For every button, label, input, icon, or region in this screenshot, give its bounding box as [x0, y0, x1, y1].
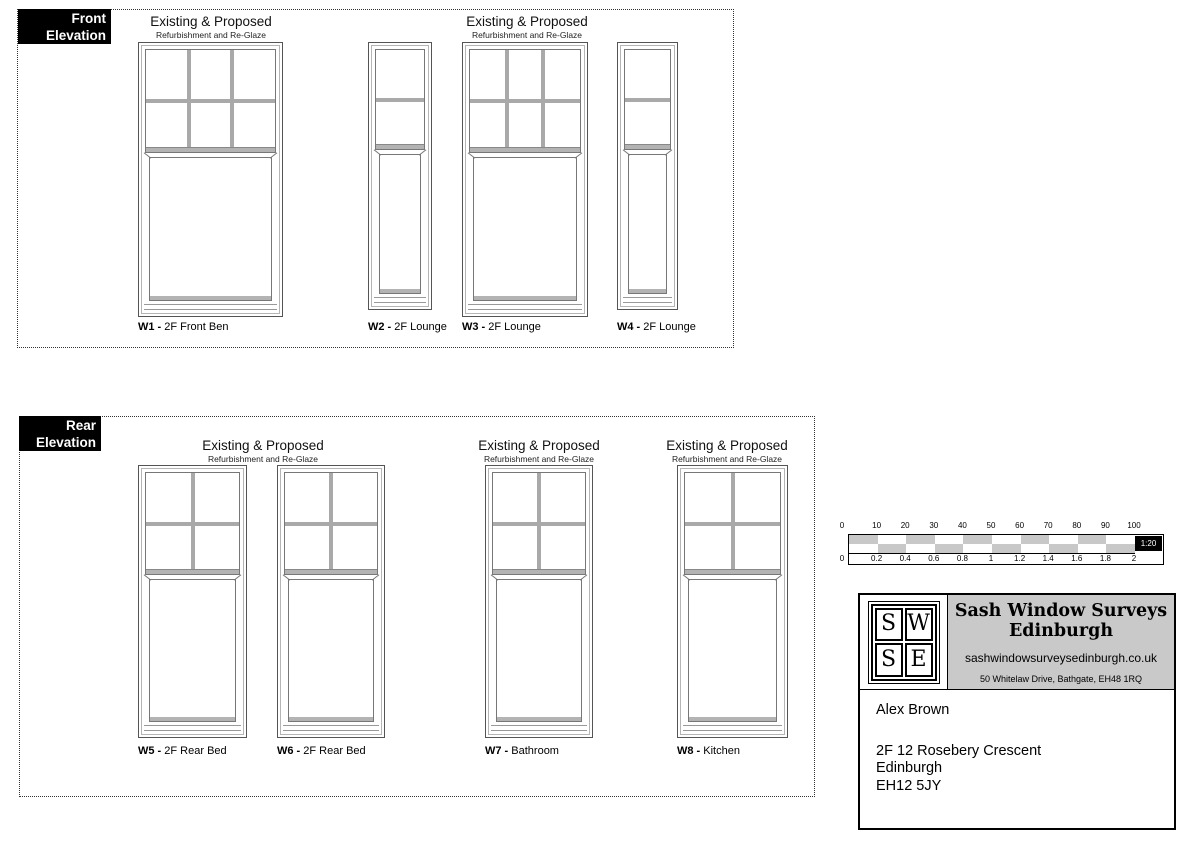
rear-heading-1-title: Existing & Proposed — [202, 438, 324, 453]
scale-segment — [1078, 535, 1107, 544]
scale-segment — [849, 535, 878, 544]
window-w1-label: W1 - 2F Front Ben — [138, 321, 228, 333]
scale-top-label: 80 — [1072, 521, 1081, 530]
bottom-sash-w3 — [473, 157, 577, 301]
scale-bottom-label: 0.8 — [957, 554, 968, 563]
bottom-rail — [150, 717, 235, 721]
scale-bottom-label: 0 — [840, 554, 844, 563]
bottom-sash-w7 — [496, 579, 582, 722]
rear-heading-1-subtitle: Refurbishment and Re-Glaze — [202, 454, 324, 464]
company-logo-frame: S W S E — [868, 601, 940, 684]
company-info: Sash Window Surveys Edinburgh sashwindow… — [947, 595, 1174, 689]
scale-top-label: 40 — [958, 521, 967, 530]
glazing-bar-horizontal — [625, 98, 670, 102]
scale-segment — [1049, 544, 1078, 553]
logo-letter-s1: S — [875, 608, 903, 642]
top-sash-w8 — [684, 472, 781, 575]
meeting-rail — [685, 569, 780, 574]
bottom-sash-w6 — [288, 579, 374, 722]
scale-top-label: 60 — [1015, 521, 1024, 530]
bottom-rail — [474, 296, 576, 300]
scale-bottom-label: 2 — [1132, 554, 1136, 563]
glazing-bar-horizontal — [470, 99, 580, 103]
window-w3 — [462, 42, 588, 317]
meeting-rail — [376, 144, 424, 149]
window-w6-label: W6 - 2F Rear Bed — [277, 745, 366, 757]
scale-top-label: 50 — [987, 521, 996, 530]
bottom-rail — [380, 289, 420, 293]
company-website: sashwindowsurveysedinburgh.co.uk — [965, 651, 1157, 665]
scale-segment — [963, 535, 992, 544]
window-frame-w8 — [680, 468, 785, 735]
rear-heading-2-title: Existing & Proposed — [478, 438, 600, 453]
window-w5 — [138, 465, 247, 738]
glazing-bar-horizontal — [376, 98, 424, 102]
title-block-header: S W S E Sash Window Surveys Edinburgh sa… — [860, 595, 1174, 690]
window-sill — [144, 725, 241, 731]
scale-segment — [878, 544, 907, 553]
meeting-rail — [146, 569, 239, 574]
scale-segment — [935, 535, 964, 544]
rear-heading-2: Existing & Proposed Refurbishment and Re… — [478, 438, 600, 464]
window-w3-label: W3 - 2F Lounge — [462, 321, 541, 333]
front-heading-1-subtitle: Refurbishment and Re-Glaze — [150, 30, 272, 40]
window-sill — [623, 297, 672, 303]
rear-heading-3-subtitle: Refurbishment and Re-Glaze — [666, 454, 788, 464]
scale-top-label: 70 — [1044, 521, 1053, 530]
bottom-rail — [497, 717, 581, 721]
scale-top-label: 20 — [901, 521, 910, 530]
scale-segment — [963, 544, 992, 553]
window-w1 — [138, 42, 283, 317]
scale-bottom-label: 0.6 — [928, 554, 939, 563]
logo-letter-w: W — [905, 608, 933, 642]
rear-heading-3: Existing & Proposed Refurbishment and Re… — [666, 438, 788, 464]
scale-bottom-label: 0.2 — [871, 554, 882, 563]
bottom-sash-w8 — [688, 579, 777, 722]
scale-bottom-label: 1.8 — [1100, 554, 1111, 563]
logo-letter-e: E — [905, 643, 933, 677]
window-frame-w4 — [620, 45, 675, 307]
front-heading-2: Existing & Proposed Refurbishment and Re… — [466, 14, 588, 40]
window-w4-label: W4 - 2F Lounge — [617, 321, 696, 333]
scale-bottom-label: 1.6 — [1071, 554, 1082, 563]
client-address-line1: 2F 12 Rosebery Crescent — [876, 743, 1158, 761]
scale-bottom-label: 1.2 — [1014, 554, 1025, 563]
scale-top-label: 100 — [1127, 521, 1140, 530]
scale-segment — [1021, 535, 1050, 544]
rear-elevation-label-line2: Elevation — [19, 435, 96, 452]
scale-segment — [849, 544, 878, 553]
logo-letter-s2: S — [875, 643, 903, 677]
meeting-rail — [146, 147, 275, 152]
client-name: Alex Brown — [876, 702, 1158, 720]
top-sash-w5 — [145, 472, 240, 575]
window-frame-w1 — [141, 45, 280, 314]
front-elevation-label-line2: Elevation — [18, 28, 106, 45]
client-address-line2: Edinburgh — [876, 760, 1158, 778]
scale-bar-box: 1:20 — [848, 534, 1164, 565]
company-name: Sash Window Surveys Edinburgh — [955, 602, 1167, 641]
window-frame-w2 — [371, 45, 429, 307]
bottom-sash-w1 — [149, 157, 272, 301]
scale-top-label: 0 — [840, 521, 844, 530]
rear-heading-2-subtitle: Refurbishment and Re-Glaze — [478, 454, 600, 464]
front-heading-2-subtitle: Refurbishment and Re-Glaze — [466, 30, 588, 40]
drawing-sheet: Front Elevation Existing & Proposed Refu… — [0, 0, 1191, 842]
scale-segment — [1021, 544, 1050, 553]
meeting-rail — [285, 569, 377, 574]
scale-segment — [878, 535, 907, 544]
scale-segment — [992, 544, 1021, 553]
company-logo-grid: S W S E — [871, 604, 937, 681]
window-w7 — [485, 465, 593, 738]
scale-segment — [935, 544, 964, 553]
glazing-bar-horizontal — [146, 522, 239, 526]
scale-bottom-label: 0.4 — [900, 554, 911, 563]
rear-heading-1: Existing & Proposed Refurbishment and Re… — [202, 438, 324, 464]
rear-heading-3-title: Existing & Proposed — [666, 438, 788, 453]
window-sill — [491, 725, 587, 731]
scale-ratio-badge: 1:20 — [1135, 536, 1162, 551]
scale-top-label: 90 — [1101, 521, 1110, 530]
company-name-line2: Edinburgh — [1009, 621, 1113, 641]
window-w5-label: W5 - 2F Rear Bed — [138, 745, 227, 757]
window-sill — [683, 725, 782, 731]
front-heading-1-title: Existing & Proposed — [150, 14, 272, 29]
title-block: S W S E Sash Window Surveys Edinburgh sa… — [858, 593, 1176, 830]
window-sill — [468, 304, 582, 310]
top-sash-w2 — [375, 49, 425, 150]
window-sill — [144, 304, 277, 310]
front-elevation-label: Front Elevation — [18, 9, 111, 44]
scale-segment — [906, 535, 935, 544]
scale-bottom-label: 1.4 — [1043, 554, 1054, 563]
rear-elevation-label-line1: Rear — [19, 418, 96, 435]
rear-elevation-label: Rear Elevation — [19, 416, 101, 451]
meeting-rail — [470, 147, 580, 152]
bottom-rail — [629, 289, 666, 293]
scale-segment — [906, 544, 935, 553]
window-frame-w6 — [280, 468, 382, 735]
top-sash-w1 — [145, 49, 276, 153]
window-frame-w5 — [141, 468, 244, 735]
client-address-line3: EH12 5JY — [876, 778, 1158, 796]
window-sill — [283, 725, 379, 731]
bottom-sash-w4 — [628, 154, 667, 294]
client-details: Alex Brown 2F 12 Rosebery Crescent Edinb… — [860, 690, 1174, 808]
company-address: 50 Whitelaw Drive, Bathgate, EH48 1RQ — [980, 674, 1142, 684]
scale-top-label: 30 — [929, 521, 938, 530]
front-elevation-label-line1: Front — [18, 11, 106, 28]
bottom-rail — [689, 717, 776, 721]
window-w4 — [617, 42, 678, 310]
window-w8-label: W8 - Kitchen — [677, 745, 740, 757]
front-heading-2-title: Existing & Proposed — [466, 14, 588, 29]
top-sash-w4 — [624, 49, 671, 150]
meeting-rail — [625, 144, 670, 149]
meeting-rail — [493, 569, 585, 574]
scale-segment — [1106, 544, 1135, 553]
bottom-sash-w5 — [149, 579, 236, 722]
company-name-line1: Sash Window Surveys — [955, 601, 1167, 621]
scale-segment — [1049, 535, 1078, 544]
scale-bar: 1:20 010203040506070809010000.20.40.60.8… — [848, 534, 1164, 565]
window-frame-w7 — [488, 468, 590, 735]
front-heading-1: Existing & Proposed Refurbishment and Re… — [150, 14, 272, 40]
scale-segment — [1106, 535, 1135, 544]
glazing-bar-horizontal — [285, 522, 377, 526]
window-w6 — [277, 465, 385, 738]
scale-bar-checker — [849, 535, 1135, 554]
glazing-bar-horizontal — [493, 522, 585, 526]
window-sill — [374, 297, 426, 303]
company-logo: S W S E — [860, 595, 947, 689]
window-w8 — [677, 465, 788, 738]
bottom-rail — [150, 296, 271, 300]
scale-bottom-label: 1 — [989, 554, 993, 563]
top-sash-w6 — [284, 472, 378, 575]
window-w2 — [368, 42, 432, 310]
top-sash-w7 — [492, 472, 586, 575]
top-sash-w3 — [469, 49, 581, 153]
window-w7-label: W7 - Bathroom — [485, 745, 559, 757]
scale-segment — [1078, 544, 1107, 553]
bottom-rail — [289, 717, 373, 721]
glazing-bar-horizontal — [685, 522, 780, 526]
glazing-bar-horizontal — [146, 99, 275, 103]
window-w2-label: W2 - 2F Lounge — [368, 321, 447, 333]
window-frame-w3 — [465, 45, 585, 314]
bottom-sash-w2 — [379, 154, 421, 294]
scale-top-label: 10 — [872, 521, 881, 530]
scale-segment — [992, 535, 1021, 544]
